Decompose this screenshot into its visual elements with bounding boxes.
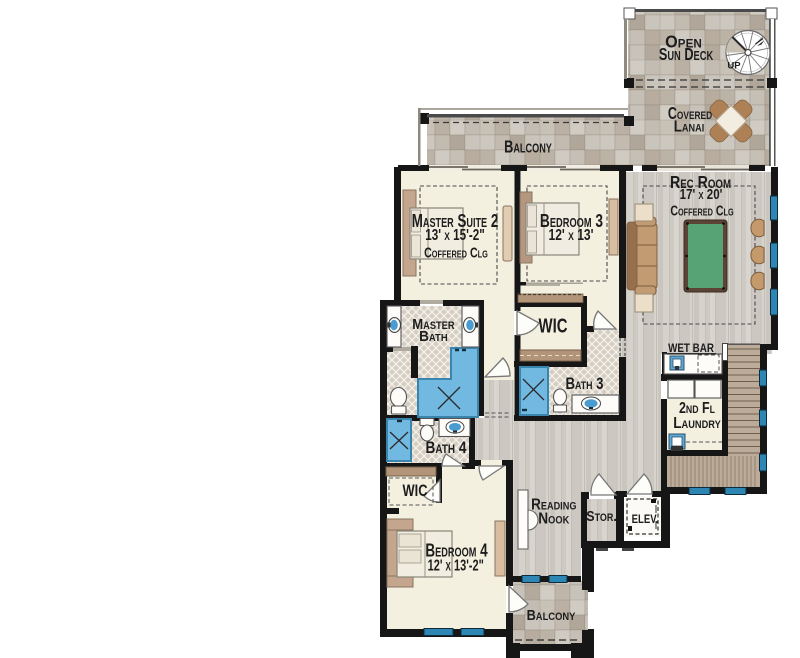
svg-text:Balcony: Balcony [527, 608, 576, 624]
svg-text:Balcony: Balcony [504, 138, 552, 157]
svg-text:WIC: WIC [403, 483, 428, 501]
svg-text:12' x 13': 12' x 13' [548, 226, 593, 244]
svg-text:Sun Deck: Sun Deck [659, 45, 713, 64]
svg-text:Bath 3: Bath 3 [565, 375, 603, 394]
svg-text:UP: UP [727, 61, 741, 72]
svg-text:Coffered Clg: Coffered Clg [424, 244, 488, 261]
svg-text:13' x 15'-2": 13' x 15'-2" [425, 225, 485, 243]
svg-text:Coffered Clg: Coffered Clg [670, 202, 733, 219]
svg-text:17' x 20': 17' x 20' [680, 186, 723, 203]
svg-text:Stor.: Stor. [586, 507, 617, 524]
svg-text:ELEV.: ELEV. [632, 513, 659, 526]
svg-text:Laundry: Laundry [673, 415, 721, 432]
svg-text:Nook: Nook [538, 511, 570, 528]
svg-text:Bath 4: Bath 4 [426, 439, 467, 457]
svg-text:Bath: Bath [419, 329, 448, 346]
svg-text:Lanai: Lanai [674, 118, 705, 135]
svg-text:12' x 13'-2": 12' x 13'-2" [428, 556, 484, 573]
svg-text:WIC: WIC [539, 314, 568, 337]
